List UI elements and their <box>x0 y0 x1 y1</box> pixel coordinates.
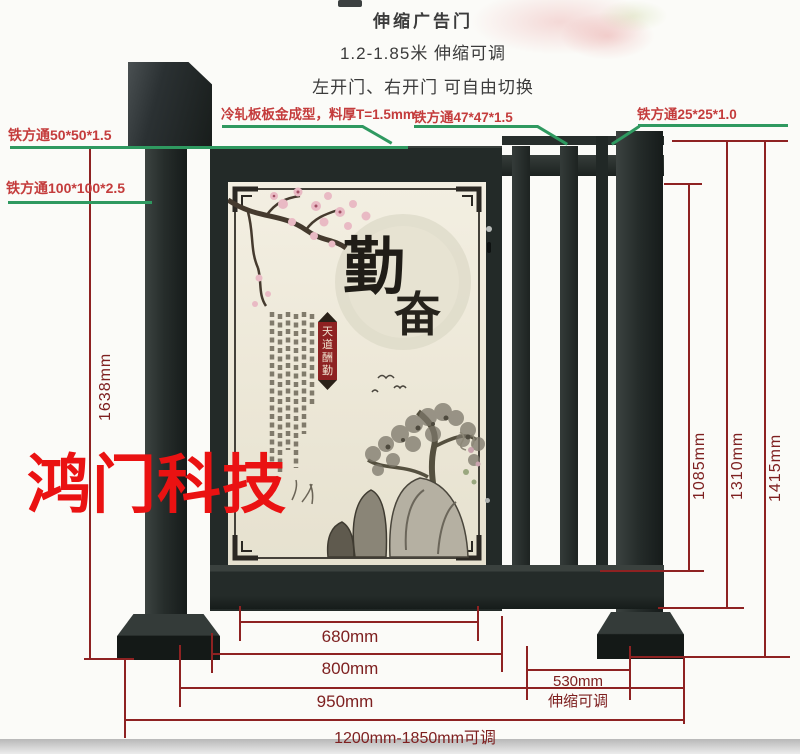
callout-tube25: 铁方通25*25*1.0 <box>637 103 737 123</box>
dim-label-1638: 1638mm <box>97 331 115 421</box>
right-post <box>616 131 663 616</box>
leader-tube25 <box>638 124 788 127</box>
dim-ext <box>600 570 704 572</box>
dim-tick <box>239 606 241 641</box>
seal-char: 勤 <box>322 364 333 377</box>
dim-label-1415: 1415mm <box>767 370 785 502</box>
page-title: 伸缩广告门 <box>273 7 573 32</box>
dim-line-1638 <box>89 147 91 659</box>
dim-ext <box>124 658 126 738</box>
dim-label-950: 950mm <box>265 692 425 712</box>
door-lock <box>486 226 492 232</box>
dim-line-800 <box>212 653 502 655</box>
dim-tick <box>211 633 213 673</box>
left-post-base <box>117 614 220 660</box>
dim-label-range: 1200mm-1850mm可调 <box>290 724 540 748</box>
callout-tube50: 铁方通50*50*1.5 <box>8 125 112 145</box>
right-post-base <box>597 612 684 659</box>
keyhole <box>487 242 491 253</box>
dim-tick <box>179 645 181 707</box>
leader-tube100 <box>8 201 152 204</box>
bottom-rail <box>210 565 664 609</box>
dim-tick <box>683 658 685 724</box>
dim-label-530-note: 伸缩可调 <box>524 690 632 711</box>
callout-tube47: 铁方通47*47*1.5 <box>413 106 513 126</box>
callout-sheet-metal: 冷轧板板金成型，料厚T=1.5mm <box>221 103 415 123</box>
dim-ext <box>630 656 790 658</box>
dim-tick <box>501 616 503 672</box>
calligraphy-fen: 奋 <box>394 288 441 343</box>
dim-ext <box>84 658 134 660</box>
subtitle-range: 1.2-1.85米 伸缩可调 <box>273 39 573 64</box>
leader-sheet-metal-diag <box>362 125 393 144</box>
dim-label-1085: 1085mm <box>691 368 709 500</box>
smudge-mark <box>338 0 362 7</box>
door-lock <box>485 498 490 503</box>
leader-sheet-metal <box>222 125 363 128</box>
seal-char: 酬 <box>322 351 333 364</box>
watermark-text: 鸿门科技 <box>27 453 287 517</box>
seal-char: 道 <box>322 337 333 351</box>
dim-ext <box>658 607 744 609</box>
dim-ext <box>664 183 702 185</box>
dim-line-1310 <box>726 140 728 609</box>
telescopic-slat <box>512 146 530 609</box>
dim-line-680 <box>240 621 478 623</box>
left-post <box>145 146 187 618</box>
dim-line-1085 <box>688 183 690 572</box>
dim-label-530: 530mm <box>528 673 628 690</box>
dim-ext <box>672 140 788 142</box>
dim-label-800: 800mm <box>270 659 430 679</box>
product-photo: 伸缩广告门 1.2-1.85米 伸缩可调 左开门、右开门 可自由切换 <box>0 0 800 754</box>
dim-tick <box>477 606 479 641</box>
inner-frame-bar <box>596 136 608 609</box>
dim-label-680: 680mm <box>270 627 430 647</box>
dim-line-530 <box>527 669 630 671</box>
dim-line-range <box>125 719 684 721</box>
telescopic-slat <box>560 146 578 609</box>
sheet-metal-housing <box>128 62 212 148</box>
leader-tube50 <box>10 146 408 149</box>
seal-ribbon: 天 道 酬 勤 <box>318 312 337 390</box>
dim-label-1310: 1310mm <box>729 368 747 500</box>
dim-line-1415 <box>764 140 766 658</box>
seal-char: 天 <box>322 326 333 338</box>
subtitle-direction: 左开门、右开门 可自由切换 <box>263 73 583 98</box>
leader-tube47 <box>414 125 538 128</box>
smudge-blob <box>598 0 668 32</box>
callout-tube100: 铁方通100*100*2.5 <box>6 178 125 198</box>
